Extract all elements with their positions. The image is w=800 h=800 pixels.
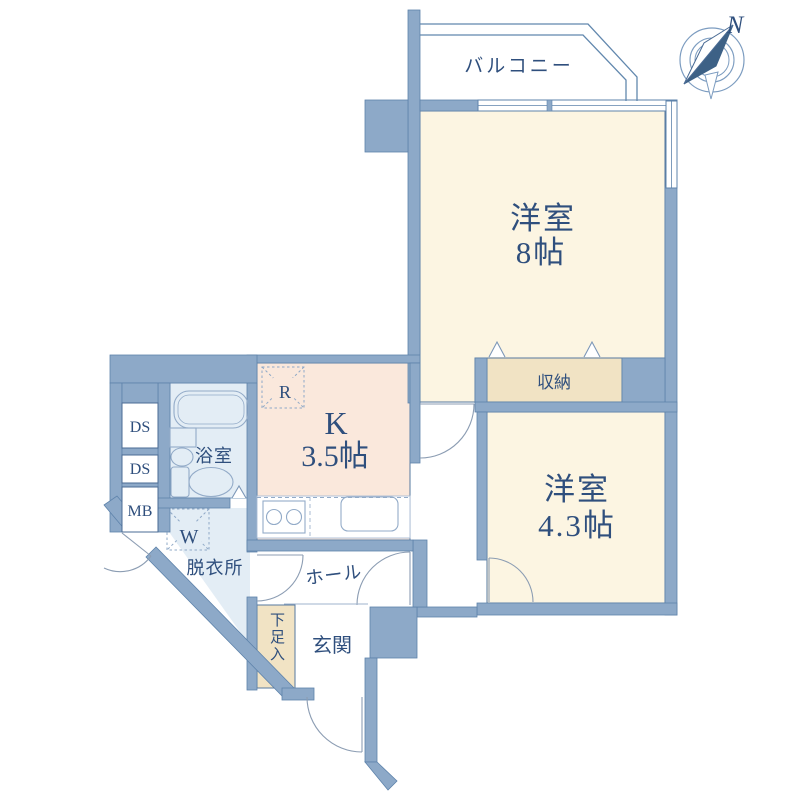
kitchen-counter bbox=[257, 496, 410, 538]
compass-north-label: N bbox=[726, 12, 745, 39]
window-top-mullion bbox=[547, 100, 552, 111]
western43-size: 4.3帖 bbox=[538, 508, 616, 543]
entrance-label: 玄関 bbox=[312, 634, 352, 657]
bathroom-floor bbox=[170, 383, 250, 498]
dressing-room-door bbox=[257, 555, 303, 601]
bathroom-label: 浴室 bbox=[195, 446, 233, 466]
balcony-label: バルコニー bbox=[464, 56, 574, 77]
compass-tail bbox=[705, 72, 718, 99]
floor-plan: N バルコニー 洋室 8帖 収納 洋室 4.3帖 K 3.5帖 浴室 脱衣所 ホ… bbox=[0, 0, 800, 800]
western8-size: 8帖 bbox=[516, 235, 567, 270]
compass-north-icon: N bbox=[680, 12, 745, 99]
kitchen-size: 3.5帖 bbox=[301, 440, 369, 473]
washing-machine-label: W bbox=[180, 526, 199, 548]
western8-name: 洋室 bbox=[510, 201, 576, 236]
duct-shaft-2-label: DS bbox=[130, 461, 150, 478]
hall-corridor-door bbox=[357, 552, 410, 605]
shoe-cabinet-label: 下足入 bbox=[268, 612, 285, 663]
western8-door bbox=[420, 404, 474, 458]
duct-shaft-1-label: DS bbox=[130, 419, 150, 436]
western43-name: 洋室 bbox=[544, 472, 610, 507]
storage-label: 収納 bbox=[537, 373, 571, 392]
floor-plan-svg: N バルコニー 洋室 8帖 収納 洋室 4.3帖 K 3.5帖 浴室 脱衣所 ホ… bbox=[0, 0, 800, 800]
meter-box-label: MB bbox=[128, 503, 153, 520]
entrance-door bbox=[307, 697, 362, 752]
refrigerator-label: R bbox=[279, 382, 291, 402]
hall-label: ホール bbox=[304, 562, 363, 589]
meter-box-door bbox=[104, 533, 151, 572]
dressing-room-label: 脱衣所 bbox=[187, 558, 244, 578]
kitchen-name: K bbox=[324, 405, 347, 441]
